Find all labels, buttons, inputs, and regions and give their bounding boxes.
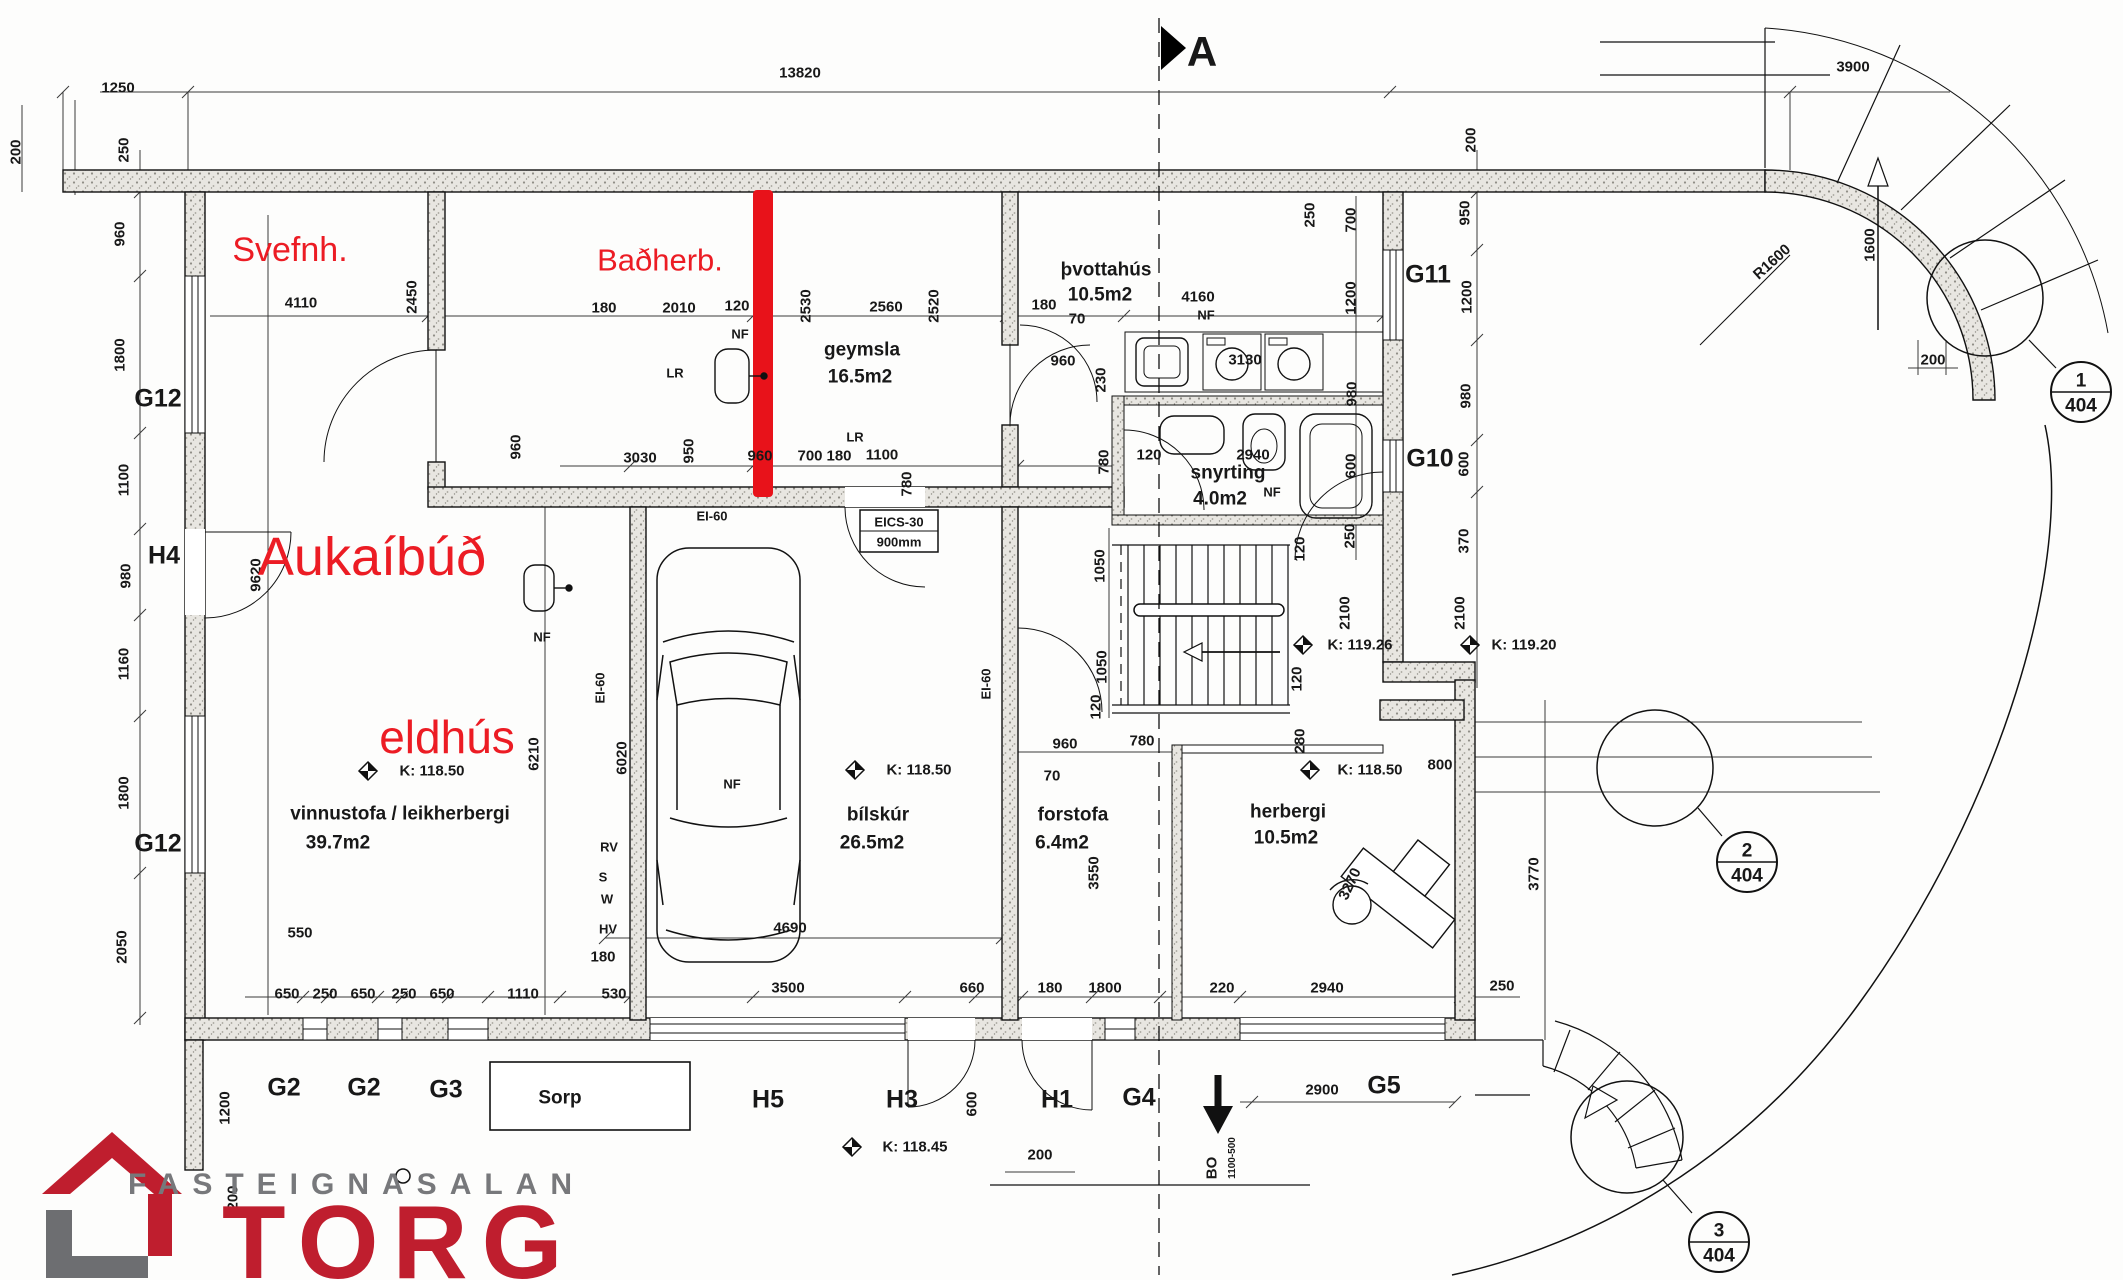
label-3270: 3270 — [1336, 866, 1364, 903]
label-280: 280 — [1293, 728, 1308, 753]
label-2450: 2450 — [405, 280, 420, 313]
label-4-0m2: 4.0m2 — [1193, 490, 1247, 509]
label-3900: 3900 — [1836, 60, 1869, 75]
room-label-herbergi: herbergi — [1250, 803, 1326, 822]
wall-label-g10: G10 — [1406, 447, 1453, 472]
label-13820: 13820 — [779, 66, 821, 81]
label-780: 780 — [1129, 734, 1154, 749]
label-lr: LR — [846, 431, 863, 444]
label-250: 250 — [391, 987, 416, 1002]
torg-logo: FASTEIGNASALAN TORG — [36, 1128, 696, 1280]
label-980: 980 — [1459, 383, 1474, 408]
label-960: 960 — [1052, 737, 1077, 752]
label-k-118-50: K: 118.50 — [1337, 763, 1402, 778]
label-800: 800 — [1427, 758, 1452, 773]
label-1800: 1800 — [1088, 981, 1121, 996]
label-lr: LR — [666, 367, 683, 380]
label-2560: 2560 — [869, 300, 902, 315]
label-1200: 1200 — [218, 1091, 233, 1124]
label-1100: 1100 — [866, 448, 899, 463]
label-2900: 2900 — [1305, 1083, 1338, 1098]
annotation-aukaibud: Aukaíbúð — [258, 530, 486, 584]
label-70: 70 — [1044, 769, 1061, 784]
annotation-eldhus: eldhús — [379, 714, 515, 760]
room-label-snyrting: snyrting — [1191, 464, 1266, 483]
label-650: 650 — [350, 987, 375, 1002]
bo-label: BO — [1205, 1157, 1220, 1180]
label-200: 200 — [1464, 127, 1479, 152]
wall-label-h4: H4 — [148, 544, 180, 569]
label-370: 370 — [1457, 528, 1472, 553]
sorp-label: Sorp — [538, 1089, 581, 1108]
wall-label-h1: H1 — [1041, 1088, 1073, 1113]
label-rv: RV — [600, 841, 618, 854]
label-250: 250 — [1489, 979, 1514, 994]
label-250: 250 — [117, 137, 132, 162]
label-700: 700 — [797, 449, 822, 464]
label-960: 960 — [113, 221, 128, 246]
label-16-5m2: 16.5m2 — [828, 368, 892, 387]
label-660: 660 — [959, 981, 984, 996]
detail-badge-3-num: 3 — [1714, 1222, 1725, 1241]
detail-badge-2-sheet: 404 — [1731, 867, 1763, 886]
label-nf: NF — [723, 778, 740, 791]
label-nf: NF — [533, 631, 550, 644]
label-1100-500: 1100-500 — [1228, 1137, 1238, 1179]
label-120: 120 — [1089, 694, 1104, 719]
label-1800: 1800 — [117, 776, 132, 809]
label-220: 220 — [1209, 981, 1234, 996]
label-4690: 4690 — [773, 921, 806, 936]
label-1250: 1250 — [101, 81, 134, 96]
label-120: 120 — [1290, 666, 1305, 691]
logo-name-text: TORG — [222, 1184, 577, 1280]
wall-label-g2-b: G2 — [347, 1076, 380, 1101]
label-1100: 1100 — [117, 464, 132, 497]
label-ei-60: EI-60 — [594, 672, 607, 703]
label-k-118-50: K: 118.50 — [399, 764, 464, 779]
detail-badge-2-num: 2 — [1742, 842, 1753, 861]
label-960: 960 — [509, 434, 524, 459]
label-k-118-50: K: 118.50 — [886, 763, 951, 778]
label-180: 180 — [826, 449, 851, 464]
detail-badge-1-sheet: 404 — [2065, 397, 2097, 416]
label-w: W — [601, 893, 613, 906]
label-180: 180 — [590, 950, 615, 965]
label-1200: 1200 — [1460, 280, 1475, 313]
label-1050: 1050 — [1095, 650, 1110, 683]
label-700: 700 — [1344, 207, 1359, 232]
label-960: 960 — [1050, 354, 1075, 369]
label-2940: 2940 — [1236, 448, 1269, 463]
label-200: 200 — [9, 139, 24, 164]
label-nf: NF — [1197, 309, 1214, 322]
label-1110: 1110 — [507, 987, 539, 1002]
room-label-forstofa: forstofa — [1038, 806, 1109, 825]
label-980: 980 — [1345, 381, 1360, 406]
wall-label-h5: H5 — [752, 1088, 784, 1113]
label-39-7m2: 39.7m2 — [306, 834, 370, 853]
wall-label-g3: G3 — [429, 1078, 462, 1103]
annotation-svefnh: Svefnh. — [232, 233, 347, 267]
label-6-4m2: 6.4m2 — [1035, 834, 1089, 853]
label-2010: 2010 — [662, 301, 695, 316]
label-650: 650 — [429, 987, 454, 1002]
label-900mm: 900mm — [877, 536, 922, 549]
label-ei-60: EI-60 — [980, 668, 993, 699]
wall-label-g4: G4 — [1122, 1086, 1155, 1111]
label-120: 120 — [1136, 448, 1161, 463]
wall-label-g12-upper: G12 — [134, 387, 181, 412]
label-250: 250 — [1303, 202, 1318, 227]
label-1200: 1200 — [1344, 281, 1359, 314]
torg-house-icon — [36, 1128, 186, 1280]
label-k-119-20: K: 119.20 — [1491, 638, 1556, 653]
label-3500: 3500 — [771, 981, 804, 996]
label-3770: 3770 — [1527, 857, 1542, 890]
label-nf: NF — [1263, 486, 1280, 499]
label-550: 550 — [287, 926, 312, 941]
label-2100: 2100 — [1338, 596, 1353, 629]
label-26-5m2: 26.5m2 — [840, 834, 904, 853]
label-180: 180 — [1037, 981, 1062, 996]
label-780: 780 — [900, 471, 915, 496]
floorplan-canvas: 1250138203900A2002509601800G121100H49801… — [0, 0, 2123, 1280]
label-950: 950 — [682, 438, 697, 463]
label-180: 180 — [1031, 298, 1056, 313]
label-r1600: R1600 — [1751, 242, 1794, 283]
detail-badge-3-sheet: 404 — [1703, 1247, 1735, 1266]
label-530: 530 — [601, 987, 626, 1002]
label-1600: 1600 — [1863, 228, 1878, 261]
label-nf: NF — [731, 328, 748, 341]
detail-badge-1-num: 1 — [2076, 372, 2087, 391]
label-4160: 4160 — [1181, 290, 1214, 305]
label-10-5m2: 10.5m2 — [1254, 829, 1318, 848]
label-780: 780 — [1097, 449, 1112, 474]
label-950: 950 — [1458, 200, 1473, 225]
label-k-118-45: K: 118.45 — [882, 1140, 947, 1155]
label-980: 980 — [119, 563, 134, 588]
label-layer: 1250138203900A2002509601800G121100H49801… — [0, 0, 2123, 1280]
label-2050: 2050 — [115, 930, 130, 963]
label-3130: 3130 — [1228, 353, 1261, 368]
label-3550: 3550 — [1087, 856, 1102, 889]
label-960: 960 — [747, 449, 772, 464]
label-600: 600 — [1344, 453, 1359, 478]
label-250: 250 — [312, 987, 337, 1002]
label-200: 200 — [1027, 1148, 1052, 1163]
label-200: 200 — [1920, 353, 1945, 368]
label-180: 180 — [591, 301, 616, 316]
label-6210: 6210 — [527, 737, 542, 770]
room-label-vinnustofa: vinnustofa / leikherbergi — [290, 805, 510, 824]
label-2520: 2520 — [927, 289, 942, 322]
room-label-geymsla: geymsla — [824, 341, 900, 360]
label-3030: 3030 — [623, 451, 656, 466]
label-s: S — [599, 871, 608, 884]
label-eics-30: EICS-30 — [874, 516, 923, 529]
label-1050: 1050 — [1093, 549, 1108, 582]
room-label-bilskur: bílskúr — [847, 806, 909, 825]
wall-label-g2-a: G2 — [267, 1076, 300, 1101]
label-650: 650 — [274, 987, 299, 1002]
label-2100: 2100 — [1453, 596, 1468, 629]
section-marker-a: A — [1187, 31, 1217, 73]
label-k-119-26: K: 119.26 — [1327, 638, 1392, 653]
wall-label-g11: G11 — [1405, 263, 1451, 288]
wall-label-h3: H3 — [886, 1088, 918, 1113]
label-10-5m2: 10.5m2 — [1068, 286, 1132, 305]
label-250: 250 — [1343, 523, 1358, 548]
label-600: 600 — [965, 1091, 980, 1116]
label-6020: 6020 — [615, 741, 630, 774]
room-label-thvottahus: þvottahús — [1061, 261, 1152, 280]
wall-label-g5: G5 — [1367, 1074, 1400, 1099]
label-1160: 1160 — [117, 648, 132, 681]
label-2530: 2530 — [799, 289, 814, 322]
label-hv: HV — [599, 923, 617, 936]
label-230: 230 — [1094, 367, 1109, 392]
label-120: 120 — [1293, 536, 1308, 561]
label-600: 600 — [1457, 451, 1472, 476]
label-4110: 4110 — [285, 296, 318, 311]
label-70: 70 — [1069, 312, 1086, 327]
label-ei-60: EI-60 — [696, 510, 727, 523]
label-2940: 2940 — [1310, 981, 1343, 996]
annotation-badherb: Baðherb. — [597, 245, 723, 276]
wall-label-g12-lower: G12 — [134, 832, 181, 857]
label-120: 120 — [724, 299, 749, 314]
label-1800: 1800 — [113, 338, 128, 371]
